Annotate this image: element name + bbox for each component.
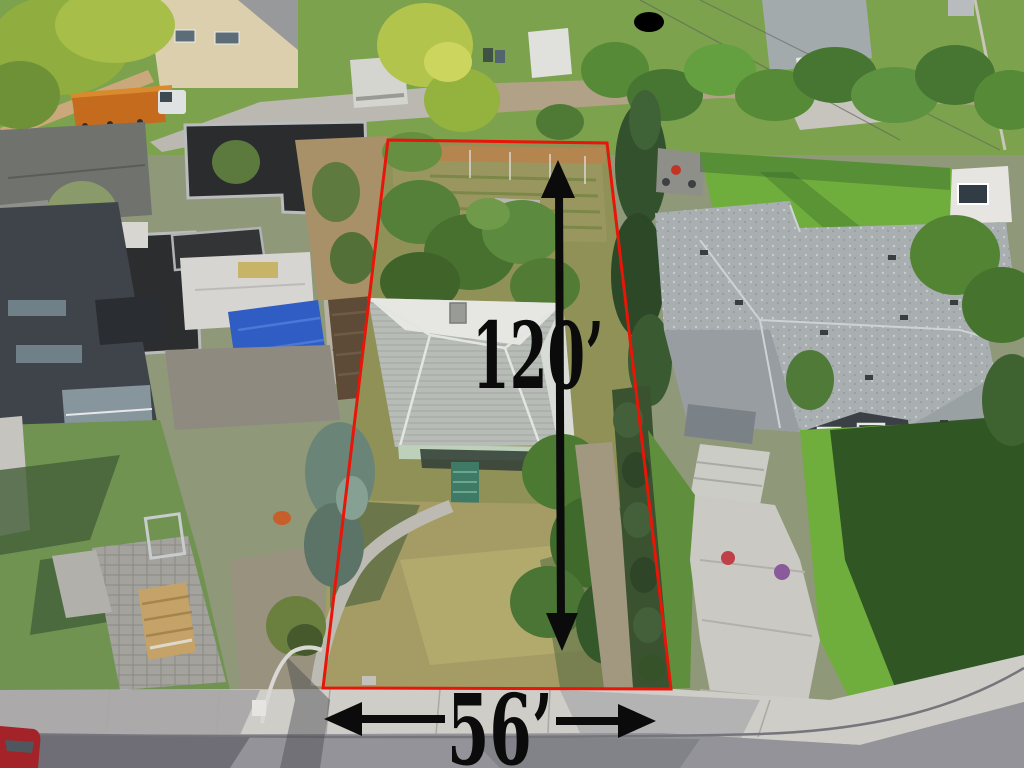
sidewalk-shadow <box>0 690 260 735</box>
white-trailer <box>528 28 572 78</box>
lamp-base <box>252 700 266 716</box>
chimney <box>450 303 466 323</box>
tree <box>212 140 260 184</box>
window <box>175 30 195 42</box>
aerial-property-photo: 120’ 56’ <box>0 0 1024 768</box>
entry-steps <box>690 444 770 505</box>
lot-depth-label: 120’ <box>472 302 604 410</box>
skylight <box>238 262 278 278</box>
lumber-pile <box>138 582 196 660</box>
tree <box>330 232 374 284</box>
shrub <box>786 350 834 410</box>
tree <box>312 162 360 222</box>
patio-umbrella <box>634 12 664 32</box>
red-car <box>0 726 40 768</box>
window-band <box>8 300 66 316</box>
orange-equipment <box>273 511 291 525</box>
window-band <box>16 345 82 363</box>
flower-pot <box>721 551 735 565</box>
aerial-scene: 120’ 56’ <box>0 0 1024 768</box>
red-chair <box>671 165 681 175</box>
window <box>215 32 239 44</box>
ground-gravel <box>165 345 340 430</box>
back-patio <box>656 148 706 196</box>
windshield <box>5 740 34 753</box>
lot-width-label: 56’ <box>447 673 553 768</box>
garbage-bin <box>483 48 493 62</box>
utility-box <box>362 676 376 685</box>
garbage-bin <box>495 50 505 63</box>
window <box>958 184 988 204</box>
flower-pot <box>774 564 790 580</box>
stairs <box>948 0 974 16</box>
